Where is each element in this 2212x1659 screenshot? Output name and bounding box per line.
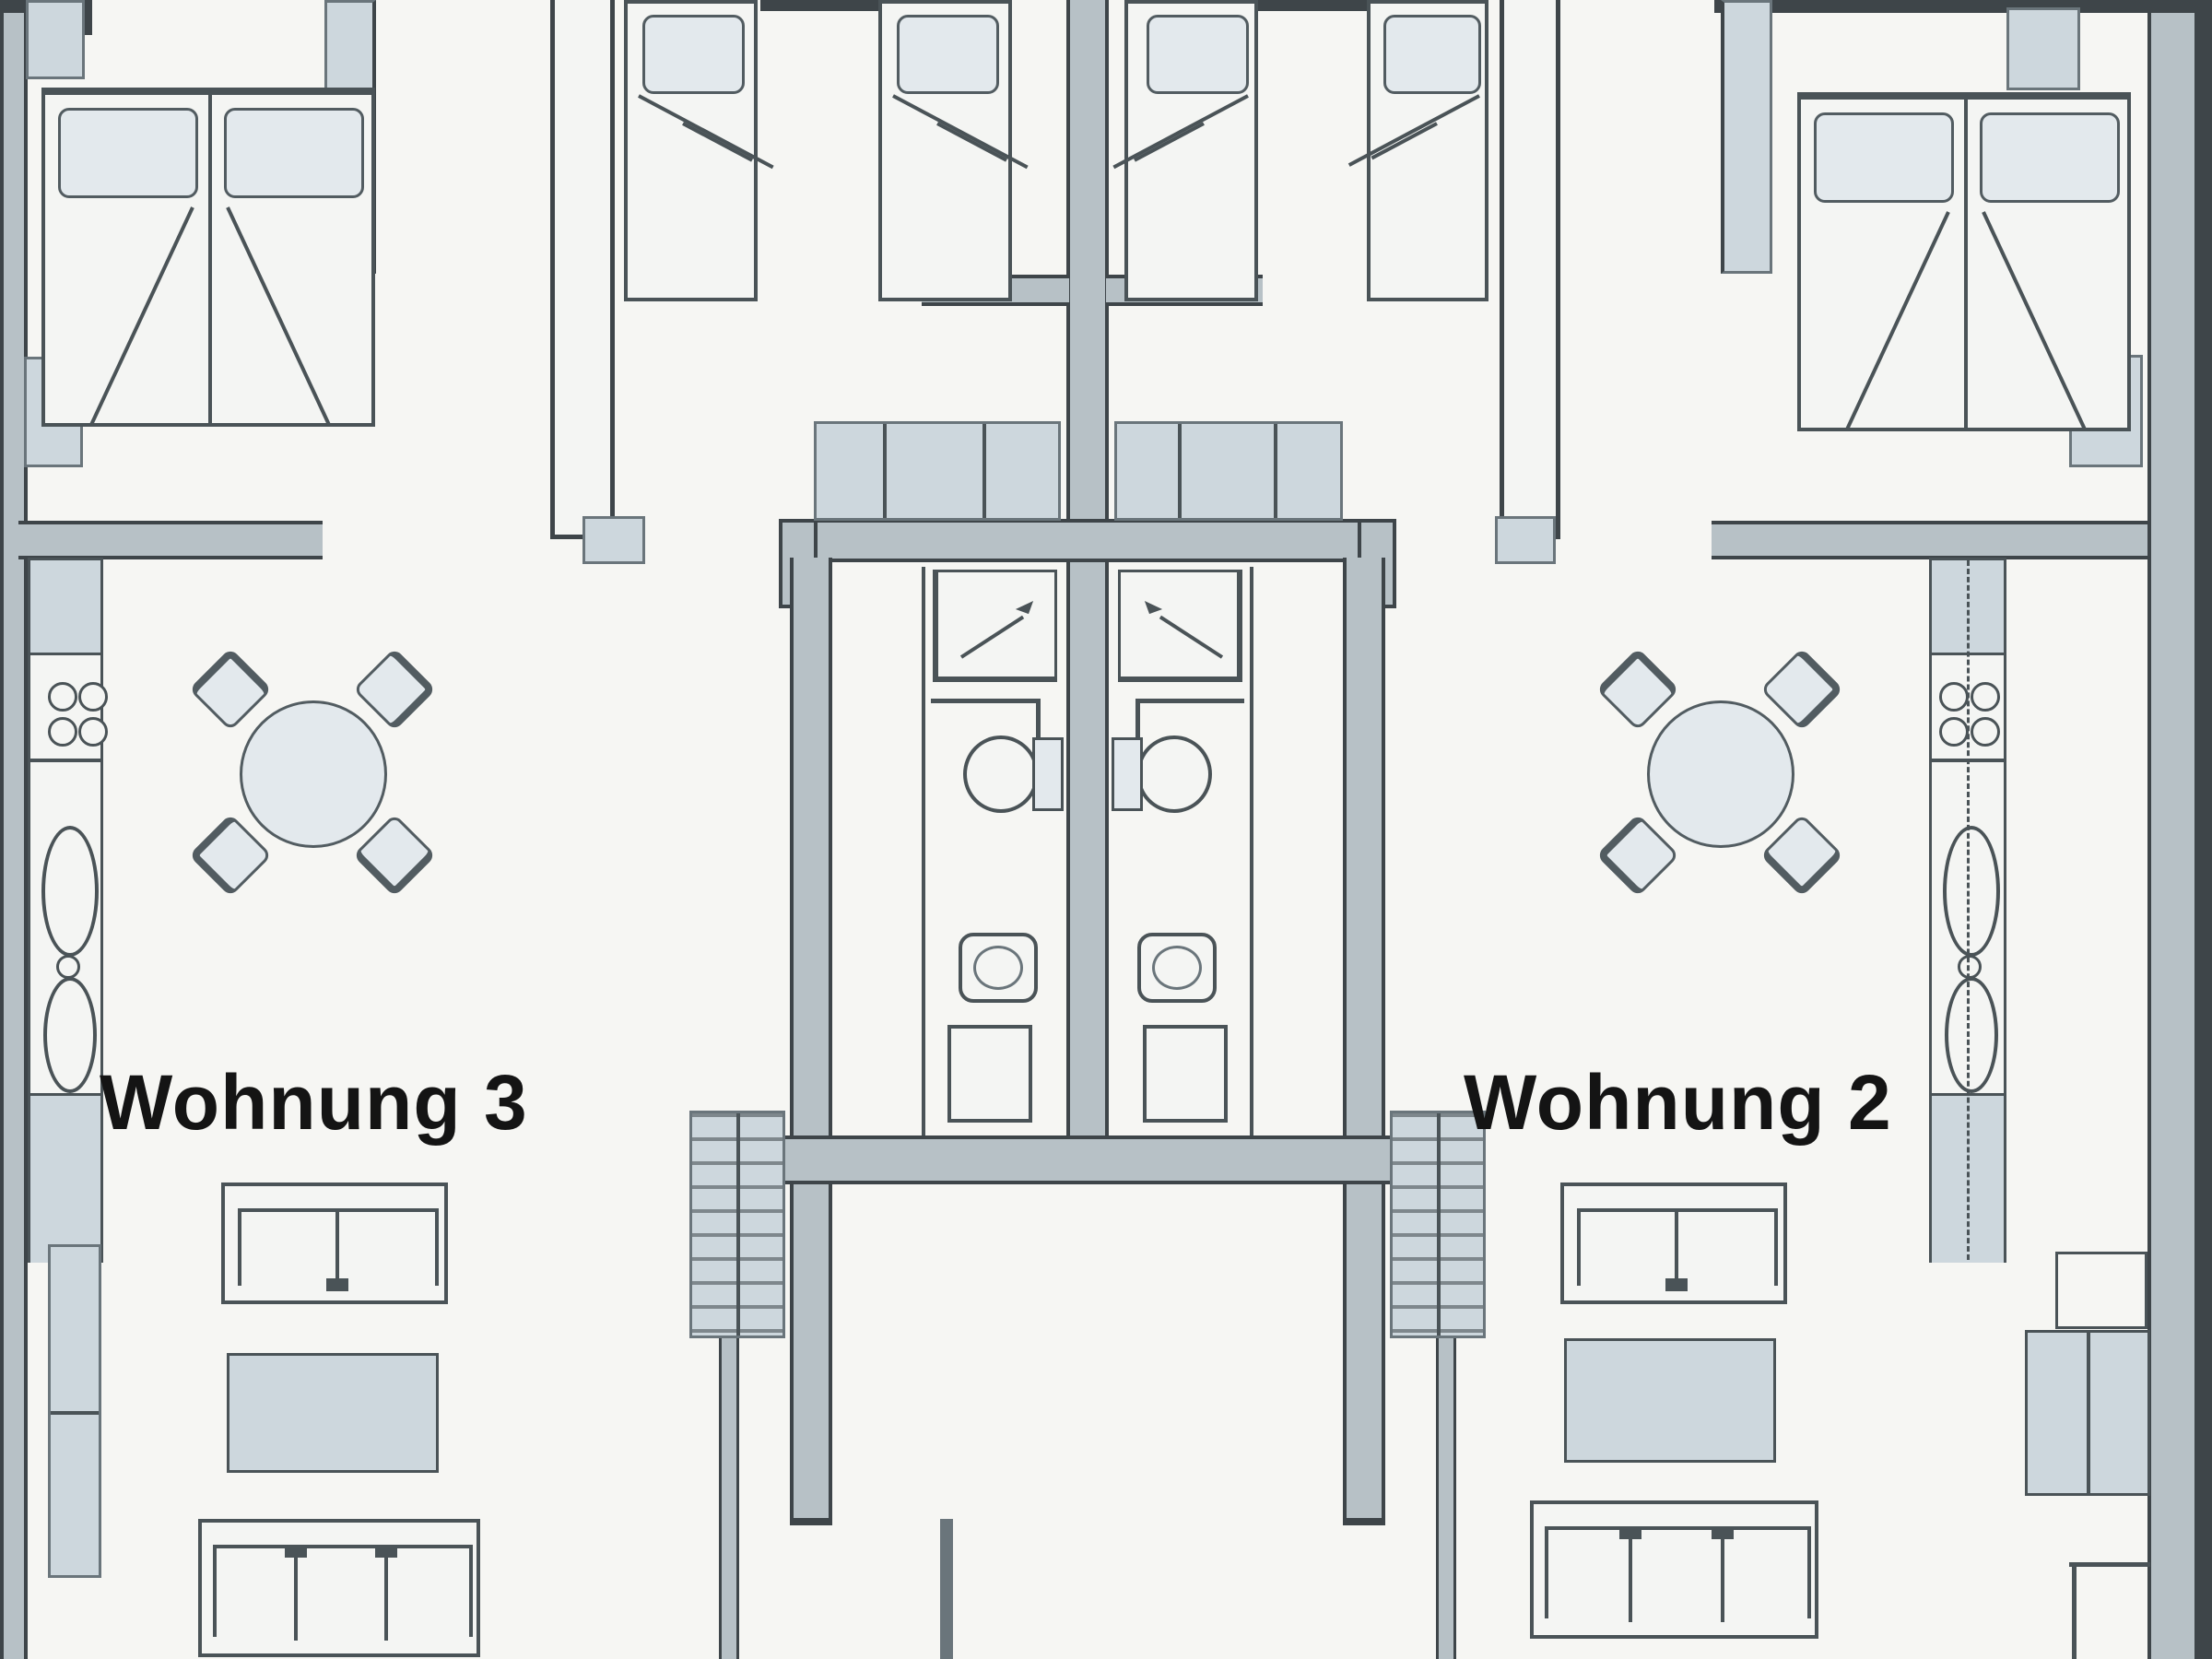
- stove-burner: [1939, 682, 1969, 712]
- toilet-tank-left: [1032, 737, 1064, 811]
- sofa-back-line: [217, 1545, 469, 1548]
- pillow: [1147, 15, 1249, 94]
- bed-fold-line: [226, 206, 331, 425]
- sofa-divider-nub: [375, 1545, 397, 1558]
- bed-fold-line: [936, 122, 1007, 161]
- kitchen-sink-basin: [1945, 977, 1998, 1093]
- sofa-divider: [294, 1545, 298, 1641]
- bed-center-line: [1964, 100, 1968, 431]
- stove-burner: [78, 682, 108, 712]
- toilet-left: [963, 735, 1039, 813]
- sofa-divider: [1629, 1526, 1632, 1622]
- shower-arrow-head: [1145, 596, 1162, 614]
- wall-hall-left: [790, 558, 832, 1525]
- shower-arrow-line: [1159, 616, 1223, 659]
- bed-fold-line: [89, 206, 194, 425]
- dining-table-right: [1647, 700, 1794, 848]
- bed-fold-line: [1134, 122, 1205, 161]
- stove-burner: [78, 717, 108, 747]
- bed-fold-line: [682, 122, 753, 161]
- single-bed: [1367, 0, 1488, 301]
- sofa-three-seat-left: [198, 1519, 480, 1657]
- sofa-divider-nub: [1665, 1278, 1688, 1291]
- pillow: [224, 108, 364, 198]
- wall-exterior-left: [0, 0, 28, 1659]
- stove-burner: [48, 682, 77, 712]
- kitchen-cabinet: [30, 560, 100, 655]
- double-bed-left: [41, 88, 375, 427]
- wall-stub-top-middle-right: [1256, 0, 1367, 11]
- wall-bedroom-bottom-right: [1712, 521, 2147, 559]
- sofa-arm-line: [1577, 1208, 1581, 1286]
- shower-arrow-line: [960, 616, 1024, 659]
- apartment-label-wohnung-3: Wohnung 3: [100, 1058, 528, 1147]
- sofa-divider-nub: [1619, 1526, 1641, 1539]
- sofa-two-seat-left: [221, 1182, 448, 1304]
- wall-bedroom-divider-right: [1500, 0, 1560, 539]
- kitchen-counter-right: [1929, 558, 2006, 1263]
- chair: [189, 814, 273, 898]
- sink-right: [1137, 933, 1217, 1003]
- entrance-door-leaf: [940, 1519, 953, 1659]
- closet-divider: [1178, 424, 1182, 518]
- kitchen-sink-basin: [41, 826, 99, 957]
- bed-fold-line: [1371, 122, 1438, 159]
- duct-left: [719, 1338, 739, 1659]
- nightstand-top-right-a: [2006, 7, 2080, 90]
- sofa-divider: [1721, 1526, 1724, 1622]
- wall-hall-crossbar: [779, 1135, 1396, 1184]
- kitchen-cabinet: [30, 1093, 100, 1263]
- wall-stub-top-middle-left: [760, 0, 880, 11]
- toilet-right: [1136, 735, 1212, 813]
- shower-arrow-head: [1016, 596, 1033, 614]
- sofa-arm-line: [238, 1208, 241, 1286]
- shower-screen-right: [1135, 699, 1244, 703]
- washing-machine-right: [1143, 1025, 1228, 1123]
- sink-basin: [1152, 946, 1202, 990]
- nightstand-top-left-a: [26, 0, 85, 79]
- wall-partition-bath-right: [1250, 567, 1253, 1135]
- sink-left: [959, 933, 1038, 1003]
- wall-foot-left: [582, 516, 645, 564]
- chair: [1760, 648, 1844, 732]
- shower-right: [1118, 570, 1242, 682]
- wall-foot-right: [1495, 516, 1556, 564]
- double-bed-right: [1797, 92, 2131, 431]
- bed-fold-line: [1982, 211, 2087, 429]
- shower-screen-left-return: [1036, 699, 1041, 737]
- shower-screen-left: [931, 699, 1040, 703]
- pillow: [1814, 112, 1954, 203]
- closet-right: [1114, 421, 1343, 521]
- coffee-table-left: [227, 1353, 439, 1473]
- bed-fold-line: [1348, 94, 1480, 167]
- stove-burner: [1939, 717, 1969, 747]
- bed-fold-line: [1845, 211, 1950, 429]
- chair: [353, 648, 437, 732]
- sofa-three-seat-right: [1530, 1500, 1818, 1639]
- sideboard-shelf-line: [2087, 1333, 2090, 1493]
- coffee-table-right: [1564, 1338, 1776, 1463]
- pillow: [1383, 15, 1481, 94]
- apartment-label-wohnung-2: Wohnung 2: [1464, 1058, 1892, 1147]
- closet-left: [814, 421, 1061, 521]
- toilet-tank-right: [1112, 737, 1143, 811]
- wall-bathroom-top: [779, 519, 1396, 562]
- sofa-divider: [384, 1545, 388, 1641]
- sofa-divider-nub: [326, 1278, 348, 1291]
- shelf-center-line: [736, 1113, 740, 1335]
- wardrobe-top-right-bedroom: [1721, 0, 1772, 274]
- pillow: [1980, 112, 2120, 203]
- single-bed: [624, 0, 758, 301]
- sofa-arm-line: [469, 1545, 473, 1637]
- wall-exterior-right-edge: [2198, 11, 2212, 1659]
- sofa-back-line: [1548, 1526, 1807, 1530]
- closet-divider: [1274, 424, 1277, 518]
- kitchen-sink-basin: [1943, 826, 2000, 957]
- chair: [189, 648, 273, 732]
- wall-top-left-corner: [0, 0, 28, 13]
- stove-burner: [1971, 682, 2000, 712]
- shower-screen-right-return: [1135, 699, 1140, 737]
- shelf-center-line: [1437, 1113, 1441, 1335]
- cabinet-stub-right-leg: [2072, 1562, 2077, 1659]
- sofa-divider-nub: [1712, 1526, 1734, 1539]
- pillow: [58, 108, 198, 198]
- kitchen-counter-left: [28, 558, 103, 1263]
- bed-fold-line: [638, 94, 774, 169]
- sofa-arm-line: [435, 1208, 439, 1286]
- single-bed: [878, 0, 1012, 301]
- kitchen-faucet: [1958, 955, 1982, 979]
- shower-left: [933, 570, 1057, 682]
- sideboard-right: [2025, 1330, 2150, 1496]
- bed-center-line: [208, 95, 212, 427]
- sideboard-shelf-line: [51, 1411, 99, 1415]
- stove-burner: [1971, 717, 2000, 747]
- kitchen-sink-basin: [43, 977, 97, 1093]
- wall-top-right: [1714, 0, 2212, 13]
- cabinet-stub-right: [2069, 1562, 2150, 1567]
- wall-central-divider: [1066, 0, 1109, 1143]
- sofa-arm-line: [213, 1545, 217, 1637]
- pillow: [897, 15, 999, 94]
- chair: [1596, 814, 1680, 898]
- chair: [1596, 648, 1680, 732]
- wall-hall-right: [1343, 558, 1385, 1525]
- bed-fold-line: [892, 94, 1029, 169]
- kitchen-dashed-line: [1967, 560, 1970, 1260]
- floor-plan: Wohnung 3 Wohnung 2: [0, 0, 2212, 1659]
- wall-bedroom-divider-left: [550, 0, 615, 539]
- kitchen-faucet: [56, 955, 80, 979]
- sofa-arm-line: [1774, 1208, 1778, 1286]
- wall-exterior-right: [2147, 11, 2198, 1659]
- washing-machine-left: [947, 1025, 1032, 1123]
- wall-bedroom-bottom-left: [18, 521, 323, 559]
- sofa-divider: [335, 1208, 339, 1286]
- single-bed: [1124, 0, 1258, 301]
- duct-right: [1436, 1338, 1456, 1659]
- sink-basin: [973, 946, 1023, 990]
- wall-unit-right-top: [2055, 1252, 2147, 1329]
- wall-partition-bath-left: [922, 567, 925, 1135]
- sofa-two-seat-right: [1560, 1182, 1787, 1304]
- sofa-divider: [1675, 1208, 1678, 1286]
- sofa-arm-line: [1807, 1526, 1811, 1618]
- sofa-arm-line: [1545, 1526, 1548, 1618]
- sideboard-left: [48, 1244, 101, 1578]
- closet-divider: [883, 424, 887, 518]
- shelf-unit-left: [689, 1111, 785, 1338]
- sofa-divider-nub: [285, 1545, 307, 1558]
- stove-burner: [48, 717, 77, 747]
- dining-table-left: [240, 700, 387, 848]
- pillow: [642, 15, 745, 94]
- closet-divider: [982, 424, 986, 518]
- counter-divider: [30, 759, 100, 762]
